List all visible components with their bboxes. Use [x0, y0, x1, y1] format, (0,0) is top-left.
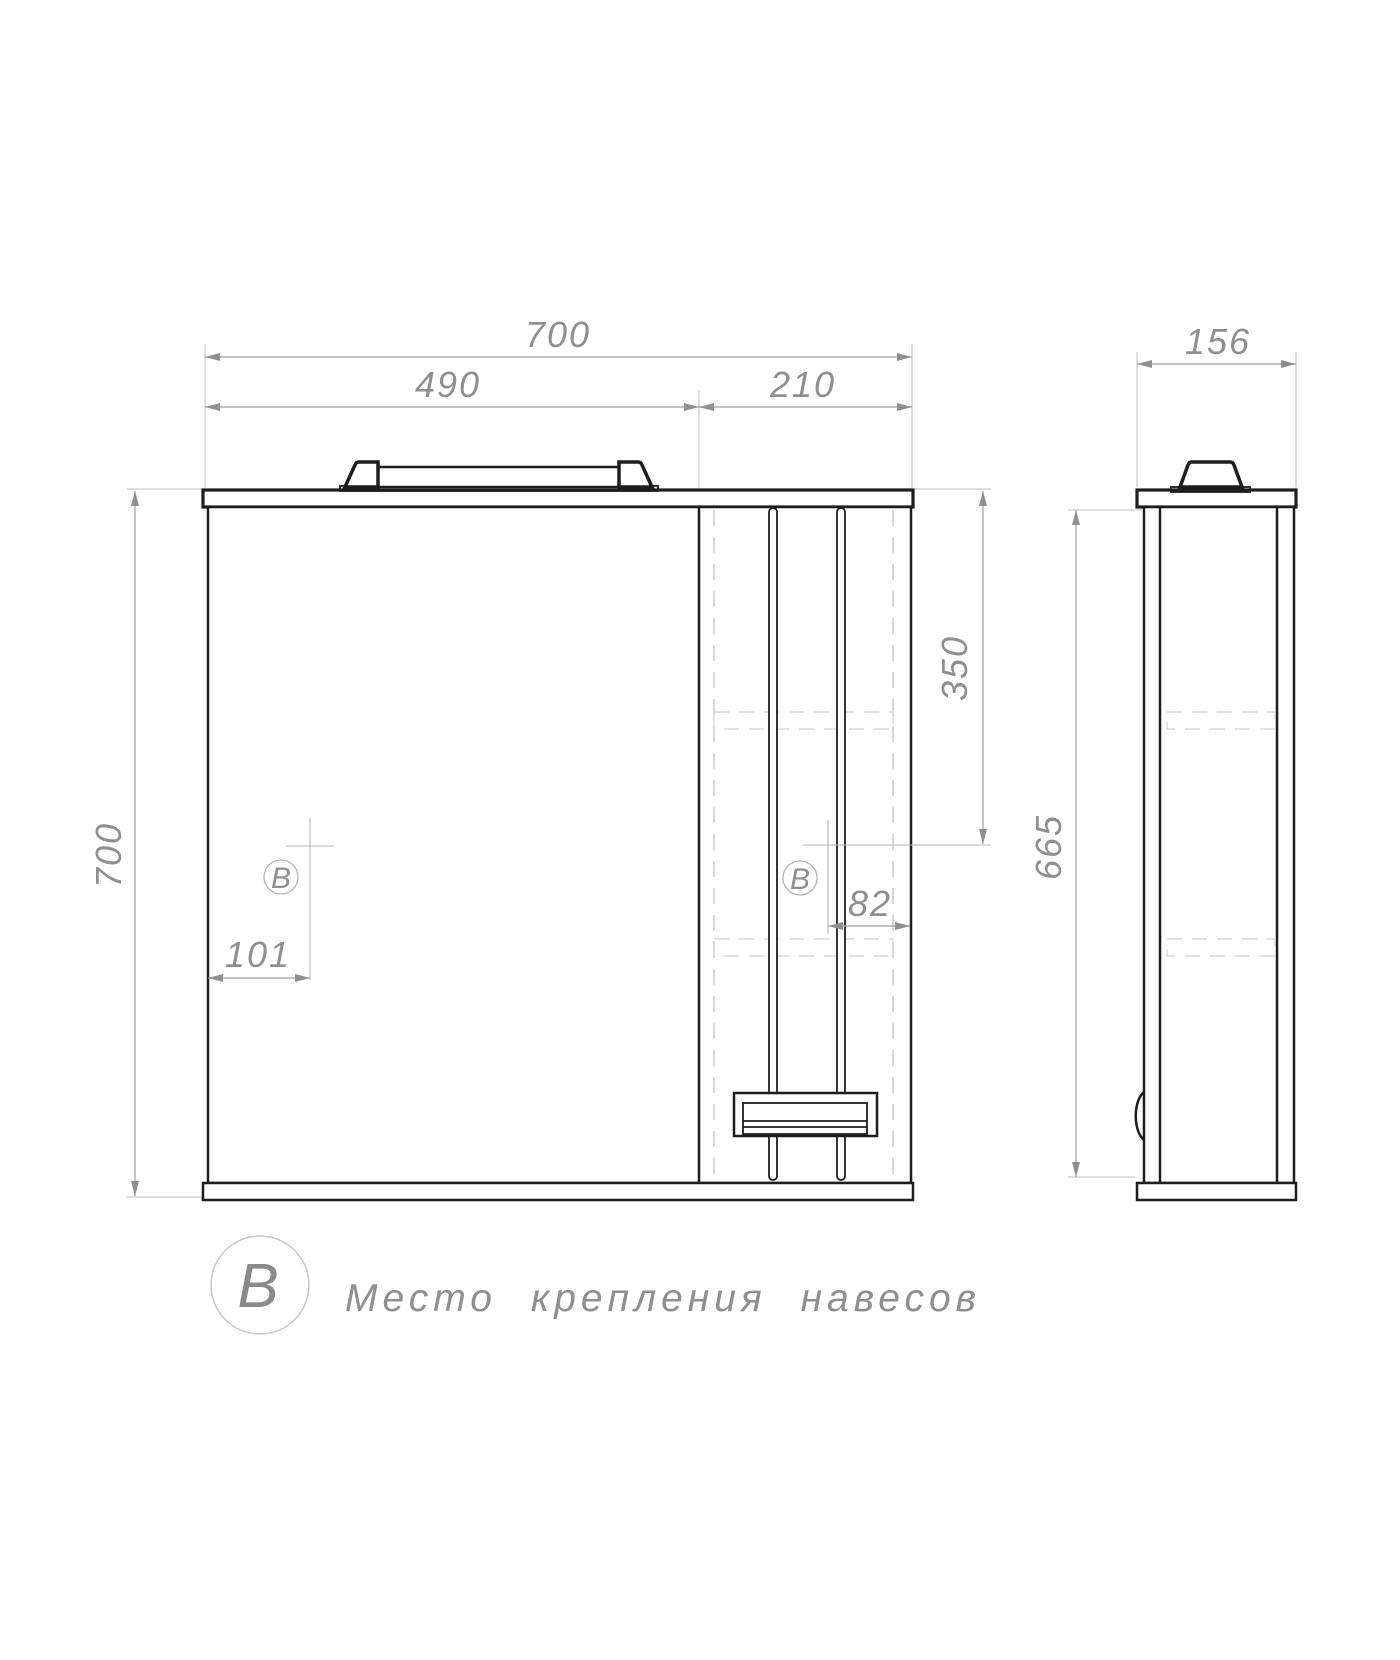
dim-carcass-height: 665 [1028, 510, 1080, 1177]
dim-hinge-right-label: 82 [848, 883, 892, 924]
dim-hinge-left-label: 101 [225, 934, 291, 975]
front-top-shelf [203, 490, 913, 507]
dim-hinge-top-label: 350 [934, 635, 975, 701]
dim-total-width: 700 [205, 314, 912, 361]
door-handle-front [734, 1093, 877, 1136]
mirror-cabinet-drawing: B B 700 490 210 [0, 0, 1400, 1660]
side-view: 156 665 [1028, 321, 1296, 1200]
dim-hinge-from-top: 350 [934, 491, 987, 844]
front-view: B B 700 490 210 [88, 314, 991, 1200]
side-bottom-shelf [1137, 1183, 1296, 1200]
dim-cabinet-width: 210 [699, 364, 912, 411]
dim-mirror-width: 490 [205, 364, 699, 411]
hinge-marker-left-label: B [271, 862, 291, 895]
lamp-side [1171, 462, 1250, 492]
technical-drawing-page: B B 700 490 210 [0, 0, 1400, 1660]
dim-carcass-height-label: 665 [1028, 814, 1069, 880]
dim-total-height: 700 [88, 491, 139, 1196]
legend: B Место крепления навесов [211, 1236, 981, 1334]
side-carcass [1144, 507, 1294, 1183]
dim-mirror-width-label: 490 [415, 364, 481, 405]
front-bottom-shelf [203, 1183, 913, 1200]
dim-cabinet-width-label: 210 [769, 364, 836, 405]
legend-text: Место крепления навесов [345, 1277, 981, 1320]
lamp-tube [378, 467, 619, 487]
dim-total-height-label: 700 [88, 822, 129, 888]
door-groove-left [769, 508, 777, 1180]
dim-total-width-label: 700 [525, 314, 591, 355]
dim-depth: 156 [1137, 321, 1296, 368]
lamp-front [340, 462, 658, 491]
legend-marker-symbol: B [237, 1252, 278, 1321]
lamp-right-foot [619, 462, 652, 487]
dim-depth-label: 156 [1185, 321, 1251, 362]
lamp-left-foot [345, 462, 378, 487]
hinge-marker-right-label: B [790, 863, 810, 896]
door-groove-right [837, 508, 845, 1180]
lamp-side-body [1180, 462, 1242, 487]
